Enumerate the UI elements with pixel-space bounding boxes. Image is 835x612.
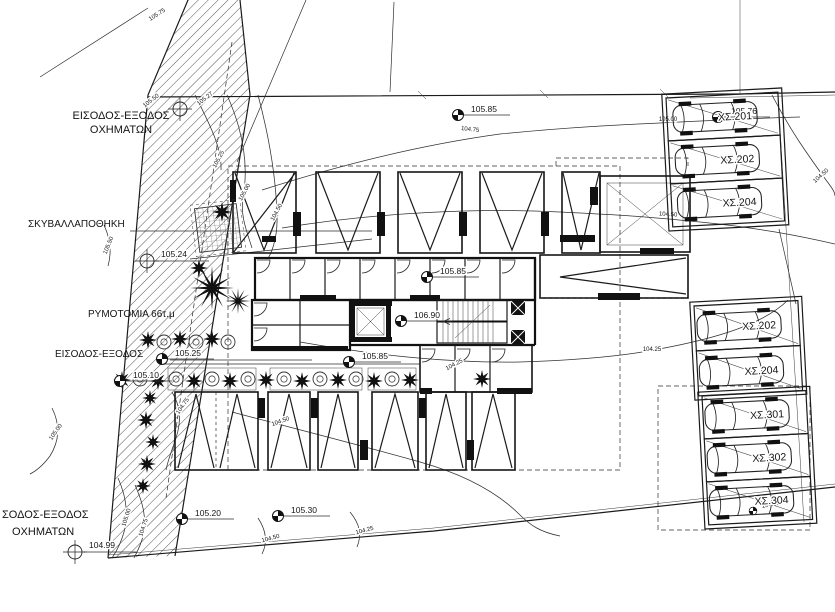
shrub-icon [329, 371, 347, 389]
shrub-icon [139, 331, 157, 349]
label-vehicle-entrance-bottom: ΣΟΔΟΣ-ΕΞΟΔΟΣ [2, 509, 89, 521]
label-entrance-exit-mid: ΕΙΣΟΔΟΣ-ΕΞΟΔΟΣ [55, 349, 143, 360]
contour-label: 105.75 [148, 7, 167, 22]
room-block-left [252, 300, 350, 351]
spot-elevation-marker: 105.85 [453, 104, 511, 121]
elevation-value: 105.20 [195, 508, 221, 518]
shaft-box [511, 330, 525, 344]
shrub-icon [135, 478, 151, 494]
contour-label: 104.50 [261, 534, 281, 545]
label-vehicle-entrance-bottom-2: ΟΧΗΜΑΤΩΝ [12, 526, 74, 538]
parking-stall-label: ΧΣ.301 [750, 408, 785, 422]
shrub-icon [205, 372, 219, 386]
garage-stall-row-bottom [175, 392, 515, 470]
shrub-icon [313, 372, 327, 386]
shrub-icon [221, 372, 239, 390]
garage-stall-row-top [230, 172, 600, 253]
contour-label: 105.00 [48, 423, 64, 442]
spot-elevation-marker: 105.20 [177, 508, 235, 525]
spot-elevation-marker: 106.90 [396, 310, 454, 327]
label-street-widening: ΡΥΜΟΤΟΜΙΑ 66τ.μ [88, 309, 175, 320]
contour-label: 105.50 [103, 235, 116, 255]
parking-stall-label: ΧΣ.304 [754, 494, 789, 508]
car-ramp [540, 255, 688, 300]
contour-label: 104.25 [643, 347, 662, 353]
shrub-icon [241, 372, 255, 386]
elevation-value: 105.85 [440, 266, 466, 276]
shrub-icon [257, 371, 275, 389]
site-plan-drawing: 105.85105.85106.90105.85105.25105.10105.… [0, 0, 835, 612]
parking-stall-label: ΧΣ.202 [742, 319, 777, 333]
elevator [350, 301, 392, 342]
parking-stall-label: ΧΣ.204 [744, 364, 779, 378]
shrub-icon [385, 372, 399, 386]
label-garbage-store: ΣΚΥΒΑΛΛΑΠΟΘΗΚΗ [28, 219, 125, 230]
spot-elevation-marker: 105.30 [273, 505, 331, 522]
elevation-value: 106.90 [414, 310, 440, 320]
parking-group: ΧΣ.202ΧΣ.204 [690, 296, 807, 400]
label-vehicle-entrance-top-2: ΟΧΗΜΑΤΩΝ [90, 124, 152, 136]
contour-label: 105.00 [659, 117, 678, 123]
shrub-icon [293, 372, 311, 390]
contour-label: 104.75 [461, 126, 481, 134]
storeroom-band [255, 258, 535, 301]
shrub-icon [473, 370, 491, 388]
parking-group: ΧΣ.201ΧΣ.202ΧΣ.204 [662, 88, 789, 231]
shrub-icon [277, 372, 291, 386]
shrub-icon [203, 330, 221, 348]
shrub-icon [137, 411, 155, 429]
shaft-box [511, 301, 525, 315]
elevation-value: 105.10 [133, 370, 159, 380]
shrub-icon [190, 259, 208, 277]
shrub-icon [145, 434, 161, 450]
elevation-value: 105.30 [291, 505, 317, 515]
parking-stall-label: ΧΣ.201 [718, 110, 753, 124]
survey-value: 105.24 [161, 249, 187, 259]
shrub-icon [365, 372, 383, 390]
elevation-value: 105.25 [175, 348, 201, 358]
label-vehicle-entrance-top: ΕΙΣΟΔΟΣ-ΕΞΟΔΟΣ [73, 110, 170, 122]
shrub-icon [171, 330, 189, 348]
shrub-icon [185, 372, 203, 390]
staircase [437, 300, 507, 343]
room-block-lower [420, 345, 532, 394]
elevation-value: 105.85 [362, 351, 388, 361]
shrub-icon [401, 371, 419, 389]
shrub-icon [212, 202, 232, 222]
survey-value: 104.99 [89, 540, 115, 550]
parking-stall-label: ΧΣ.202 [720, 153, 755, 167]
spot-elevation-marker: 105.85 [344, 351, 402, 368]
elevation-value: 105.85 [471, 104, 497, 114]
parking-stall-label: ΧΣ.302 [752, 451, 787, 465]
shrub-icon [142, 390, 158, 406]
site-plan-page: 105.85105.85106.90105.85105.25105.10105.… [0, 0, 835, 612]
parking-group: ΧΣ.301ΧΣ.302ΧΣ.304 [698, 386, 817, 529]
shrub-icon [349, 372, 363, 386]
parking-stall-label: ΧΣ.204 [722, 196, 757, 210]
shrub-icon [138, 455, 156, 473]
road-hatch-strip [108, 0, 250, 558]
